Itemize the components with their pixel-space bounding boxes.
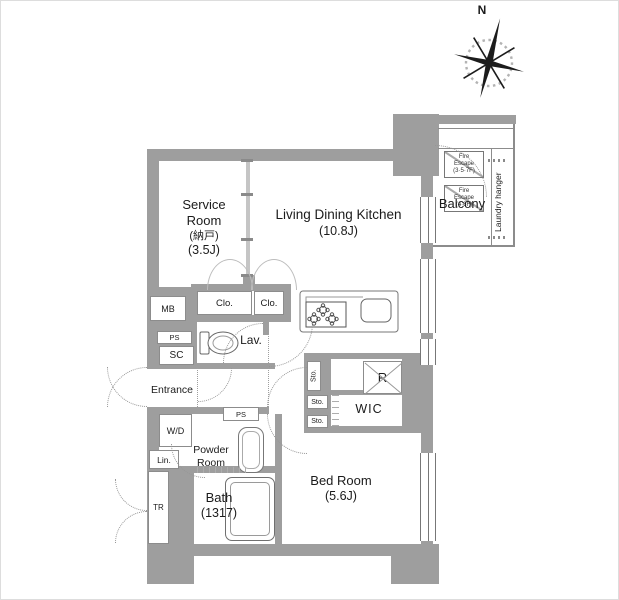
bedroom-door-arc xyxy=(267,414,307,454)
compass-north-label: N xyxy=(473,3,491,18)
hall-door-arc xyxy=(198,368,232,402)
washer-dryer: W/D xyxy=(159,414,192,447)
wall-balcony-top xyxy=(431,115,516,124)
service-room-label: Service Room (納戸) (3.5J) xyxy=(169,197,239,259)
sliding-partition xyxy=(246,161,250,277)
bedroom-name: Bed Room xyxy=(286,473,396,489)
closet-left: Clo. xyxy=(197,291,252,315)
refrigerator-space: R xyxy=(363,361,402,394)
trunk-door-arc xyxy=(115,511,147,543)
wic-sliding-door xyxy=(332,395,339,426)
service-room-size: (3.5J) xyxy=(169,243,239,259)
meter-box: MB xyxy=(150,296,186,321)
balcony-line-upper xyxy=(438,128,514,129)
bath-name: Bath xyxy=(173,490,265,506)
ldk-name: Living Dining Kitchen xyxy=(256,207,421,224)
ldk-label: Living Dining Kitchen (10.8J) xyxy=(256,207,421,240)
entrance-label: Entrance xyxy=(145,384,199,397)
balcony-label: Balcony xyxy=(431,196,493,212)
bath-label: Bath (1317) xyxy=(173,490,265,522)
partition-tick xyxy=(241,193,253,196)
partition-tick xyxy=(241,159,253,162)
powder-room-label: Powder Room xyxy=(185,444,237,470)
partition-tick xyxy=(241,238,253,241)
pipe-space-upper: PS xyxy=(157,331,192,344)
wall-top xyxy=(147,149,394,161)
service-room-name: Service Room xyxy=(169,197,239,230)
trunk-room: TR xyxy=(148,471,169,544)
window-ldk-large xyxy=(420,259,436,333)
storage-lower: Sto. xyxy=(307,415,328,428)
shoe-closet: SC xyxy=(159,346,194,365)
entrance-threshold-line xyxy=(159,366,197,367)
wall-right-inner-block xyxy=(402,357,421,433)
wall-closet-bottom xyxy=(191,315,291,322)
wall-bottom-right-block xyxy=(391,544,439,584)
floor-plan: N xyxy=(0,0,619,600)
bedroom-label: Bed Room (5.6J) xyxy=(286,473,396,505)
kitchen-counter xyxy=(299,290,399,333)
bedroom-size: (5.6J) xyxy=(286,489,396,505)
lavatory-label: Lav. xyxy=(233,333,269,348)
service-room-kanji: (納戸) xyxy=(169,230,239,244)
ldk-size: (10.8J) xyxy=(256,224,421,240)
bifold-door-arc xyxy=(251,259,297,290)
storage-middle: Sto. xyxy=(307,395,328,409)
sink-icon xyxy=(361,299,391,322)
storage-vertical: Sto. xyxy=(307,361,321,391)
bath-size: (1317) xyxy=(173,506,265,522)
pipe-space-lower: PS xyxy=(223,407,259,421)
laundry-hanger-label: Laundry hanger xyxy=(493,156,509,248)
hall-door-arc xyxy=(267,367,307,407)
closet-right: Clo. xyxy=(254,291,284,315)
compass-icon xyxy=(447,15,531,107)
trunk-door-arc xyxy=(115,479,147,511)
balcony-edge-right xyxy=(513,124,515,247)
wic-label: WIC xyxy=(341,402,397,418)
window-bedroom xyxy=(420,453,436,541)
window-ldk-small xyxy=(420,339,436,365)
